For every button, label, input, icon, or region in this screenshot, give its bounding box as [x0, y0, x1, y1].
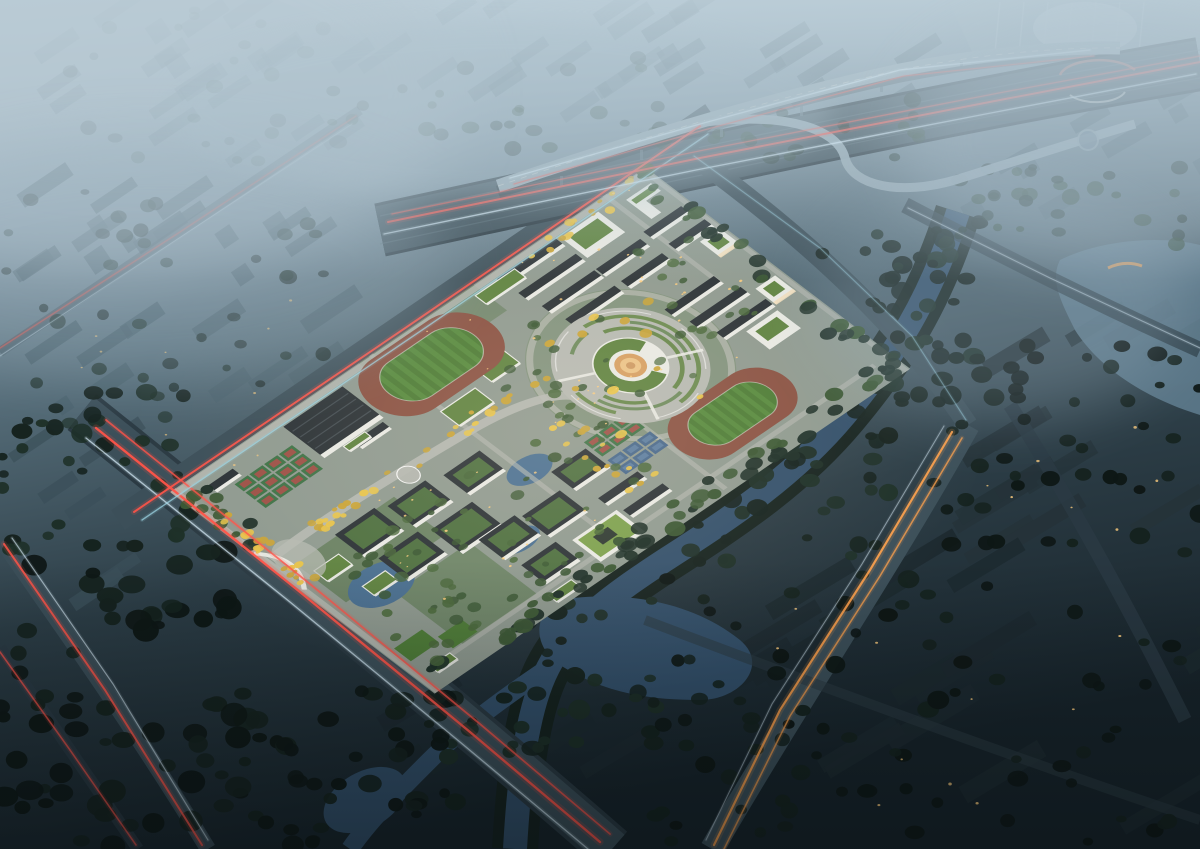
tree — [43, 531, 54, 540]
window-light — [986, 485, 988, 487]
tree — [1177, 547, 1192, 557]
window-light — [1070, 507, 1072, 509]
tree — [987, 535, 1005, 549]
tree — [1076, 443, 1088, 453]
tree — [1167, 355, 1182, 365]
aerial-render — [0, 0, 1200, 849]
tree — [77, 468, 88, 475]
tree — [84, 386, 104, 400]
tree — [1010, 471, 1021, 481]
tree — [1041, 471, 1060, 486]
tree — [1138, 422, 1149, 430]
tree — [1130, 528, 1151, 545]
tree — [1120, 394, 1135, 407]
tree — [1011, 480, 1025, 491]
tree — [974, 502, 991, 513]
tree — [1041, 536, 1056, 546]
tree — [83, 407, 101, 423]
tree — [1067, 539, 1079, 548]
tree — [30, 377, 43, 388]
tree — [106, 387, 123, 398]
tree — [46, 419, 64, 435]
tree — [63, 456, 75, 466]
window-light — [1115, 528, 1118, 531]
tree — [16, 443, 28, 453]
tree — [126, 540, 143, 552]
tree — [83, 539, 101, 551]
tree — [1166, 433, 1182, 443]
tree — [1161, 471, 1174, 482]
tree — [51, 519, 65, 529]
tree — [1134, 485, 1146, 494]
tree — [996, 453, 1013, 464]
tree — [62, 418, 79, 429]
window-light — [1010, 496, 1013, 498]
tree — [1113, 473, 1127, 485]
window-light — [1133, 426, 1137, 429]
window-light — [1155, 479, 1158, 482]
tree — [48, 403, 63, 413]
window-light — [1036, 460, 1039, 462]
tree — [1059, 435, 1076, 447]
tree — [1155, 382, 1165, 389]
fog-band-north — [170, 20, 830, 200]
bottom-vignette — [0, 560, 1200, 849]
aerial-render-stage: Aerial dusk rendering of a university ca… — [0, 0, 1200, 849]
fog-patch-east — [810, 180, 1190, 420]
tree — [12, 424, 33, 439]
tree — [1075, 468, 1092, 481]
tree — [36, 419, 49, 427]
